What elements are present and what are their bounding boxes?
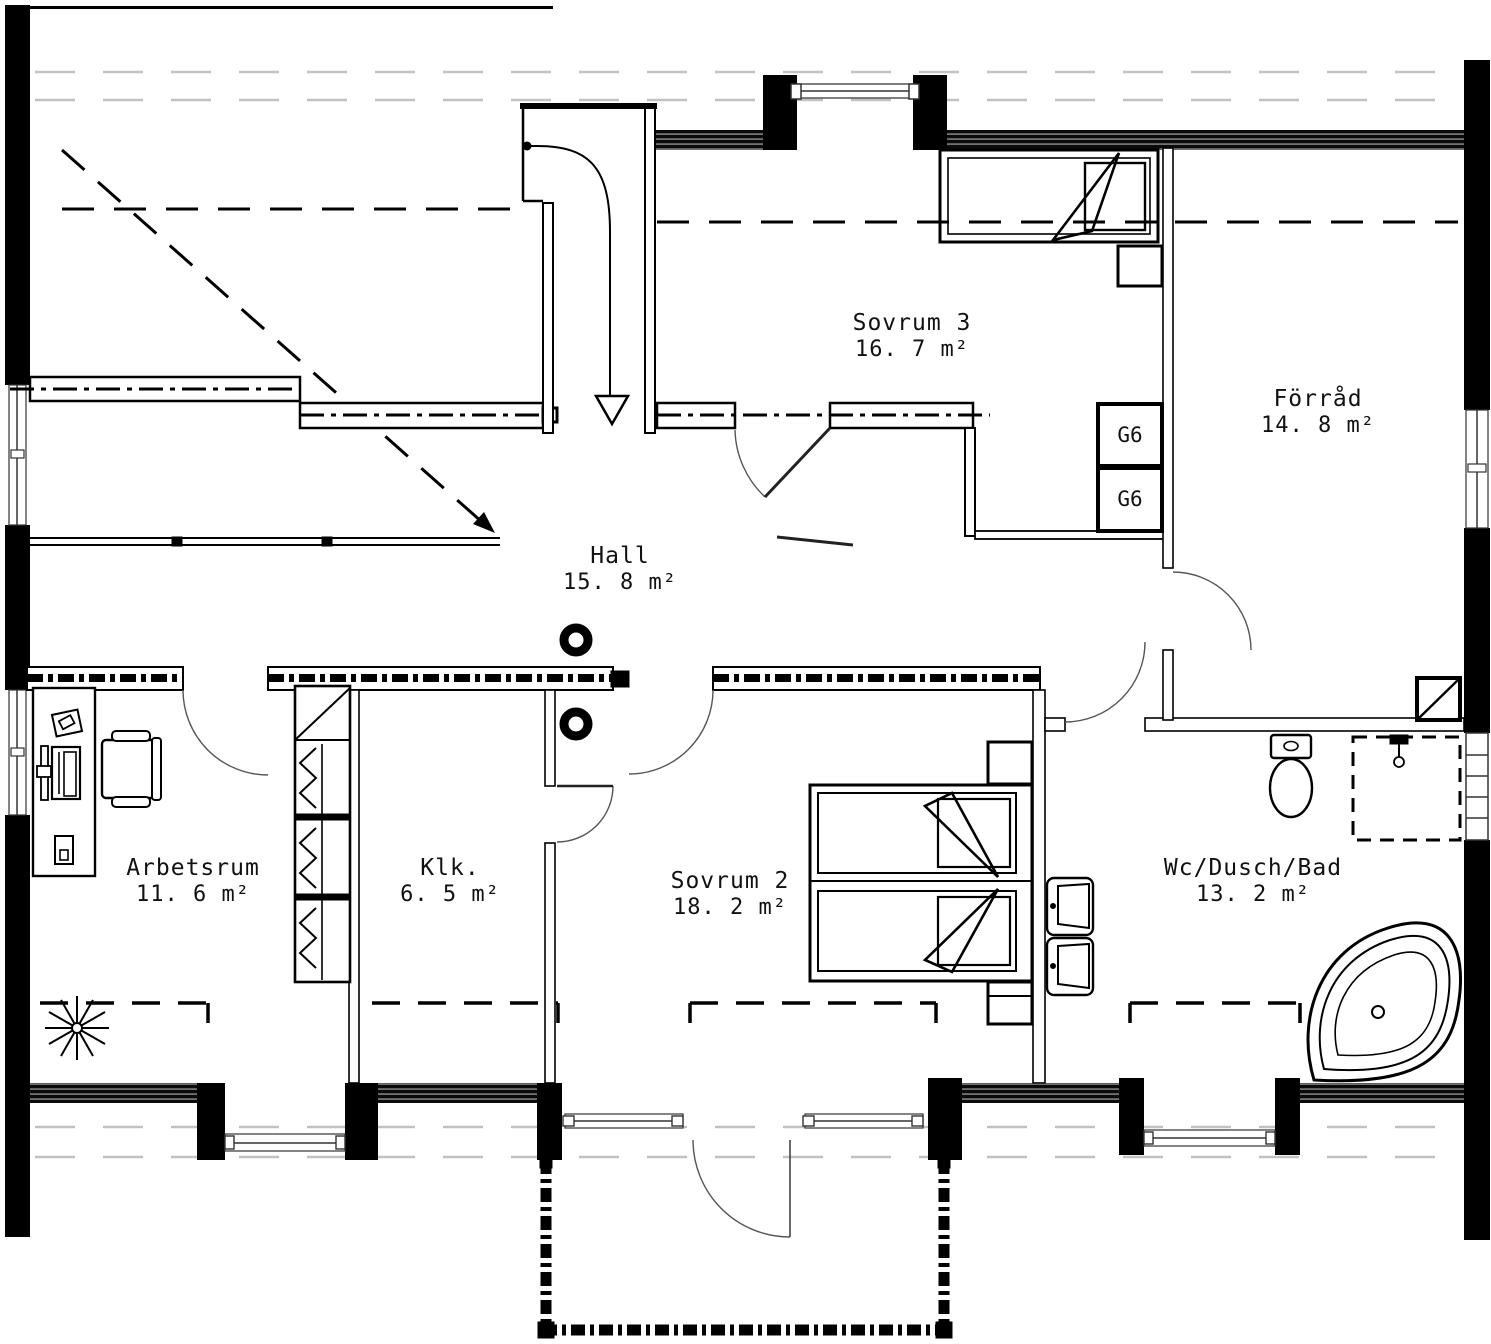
room-name: Sovrum 3: [802, 310, 1022, 337]
windows: [9, 84, 1488, 1151]
void-edge-line: [27, 537, 500, 546]
arbetsrum-door-arc: [183, 690, 268, 775]
room-name: Sovrum 2: [620, 868, 840, 895]
forrad-door-arc: [1173, 572, 1251, 650]
window-top: [791, 84, 919, 99]
room-name: Wc/Dusch/Bad: [1143, 855, 1363, 882]
stair-down-arrow: [596, 396, 628, 424]
shower: [1353, 735, 1460, 840]
room-area: 14. 8 m²: [1208, 413, 1428, 439]
shaft: [1417, 678, 1460, 720]
room-area: 13. 2 m²: [1143, 882, 1363, 908]
balcony: [538, 1158, 952, 1338]
window-left-top: [9, 385, 26, 525]
room-label-klk: Klk. 6. 5 m²: [340, 855, 560, 908]
window-balcony-right: [803, 1114, 923, 1128]
room-name: Förråd: [1208, 386, 1428, 413]
floor-plan-drawing: [0, 0, 1491, 1344]
interior-walls: [27, 148, 1464, 1083]
bathroom-door-arc: [1065, 642, 1145, 722]
balcony-door: [693, 1140, 790, 1237]
roof-overhang-lines: [35, 72, 1460, 1157]
window-bottom-arbetsrum: [225, 1134, 345, 1151]
room-name: Hall: [510, 543, 730, 570]
wardrobe: [295, 686, 350, 982]
window-right-bath: [1466, 733, 1488, 840]
room-label-hall: Hall 15. 8 m²: [510, 543, 730, 596]
plant: [45, 996, 109, 1060]
window-bottom-bathroom: [1144, 1130, 1275, 1146]
room-area: 16. 7 m²: [802, 337, 1022, 363]
bathtub: [1308, 923, 1461, 1081]
room-label-sovrum2: Sovrum 2 18. 2 m²: [620, 868, 840, 921]
window-balcony-left: [563, 1114, 683, 1128]
staircase: [523, 106, 656, 433]
slope-direction-arrow: [62, 150, 495, 533]
desk: [33, 688, 95, 876]
toilet: [1270, 735, 1312, 817]
klk-door: [557, 786, 613, 842]
room-label-wc: Wc/Dusch/Bad 13. 2 m²: [1143, 855, 1363, 908]
room-area: 6. 5 m²: [340, 882, 560, 908]
room-area: 18. 2 m²: [620, 895, 840, 921]
room-label-forrad: Förråd 14. 8 m²: [1208, 386, 1428, 439]
exterior-walls: [5, 5, 1490, 1240]
room-area: 11. 6 m²: [83, 882, 303, 908]
room-area: 15. 8 m²: [510, 570, 730, 596]
cabinet-label-g6-bottom: G6: [1098, 468, 1162, 531]
room-name: Klk.: [340, 855, 560, 882]
sovrum2-door-arc: [629, 690, 713, 774]
office-chair: [102, 731, 161, 807]
window-left-bottom: [9, 690, 26, 815]
floor-plan: Sovrum 3 16. 7 m² Förråd 14. 8 m² Hall 1…: [0, 0, 1491, 1344]
stair-walk-line: [527, 146, 610, 396]
room-label-sovrum3: Sovrum 3 16. 7 m²: [802, 310, 1022, 363]
nightstand: [988, 982, 1032, 1024]
void-railings: [10, 377, 1165, 539]
sinks: [1047, 878, 1093, 995]
nightstand: [988, 742, 1032, 784]
room-label-arbetsrum: Arbetsrum 11. 6 m²: [83, 855, 303, 908]
bed-sovrum3: [940, 150, 1162, 286]
cabinet-label-g6-top: G6: [1098, 404, 1162, 466]
window-right: [1466, 410, 1488, 528]
sovrum3-door: [735, 428, 853, 545]
bed-sovrum2: [810, 742, 1032, 1024]
room-name: Arbetsrum: [83, 855, 303, 882]
